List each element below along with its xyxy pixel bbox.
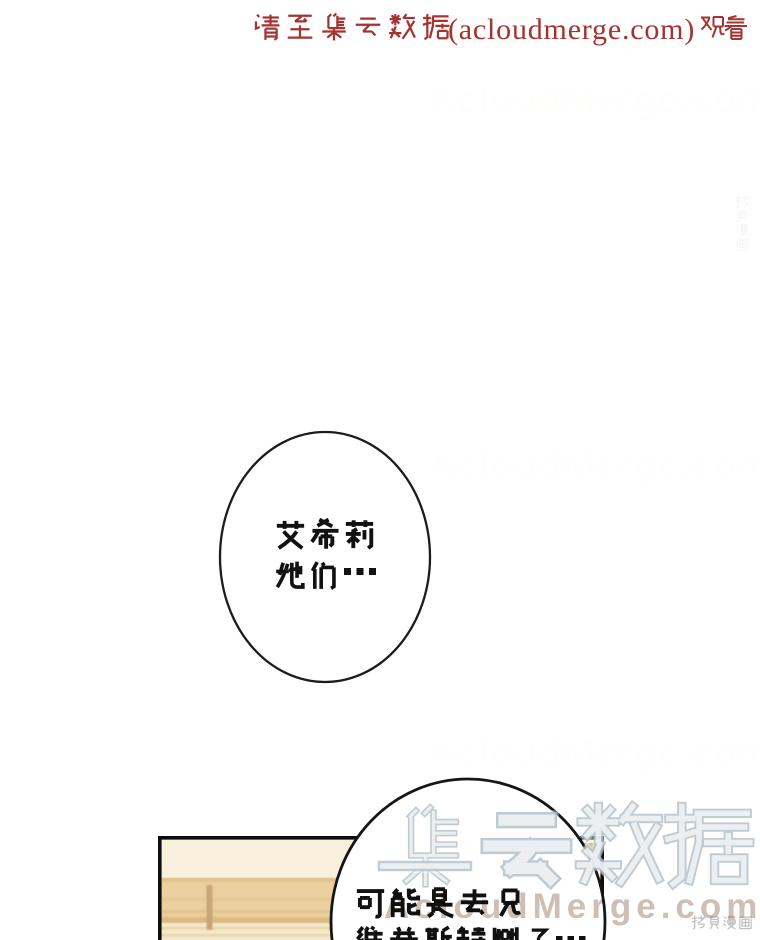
svg-text:AcloudMerge.com: AcloudMerge.com	[384, 887, 760, 926]
svg-text:AcloudMerge.com: AcloudMerge.com	[428, 79, 760, 121]
svg-text:AcloudMerge.com: AcloudMerge.com	[428, 445, 760, 487]
svg-text:(acloudmerge.com): (acloudmerge.com)	[448, 13, 695, 46]
svg-text:AcloudMerge.com: AcloudMerge.com	[428, 732, 760, 774]
